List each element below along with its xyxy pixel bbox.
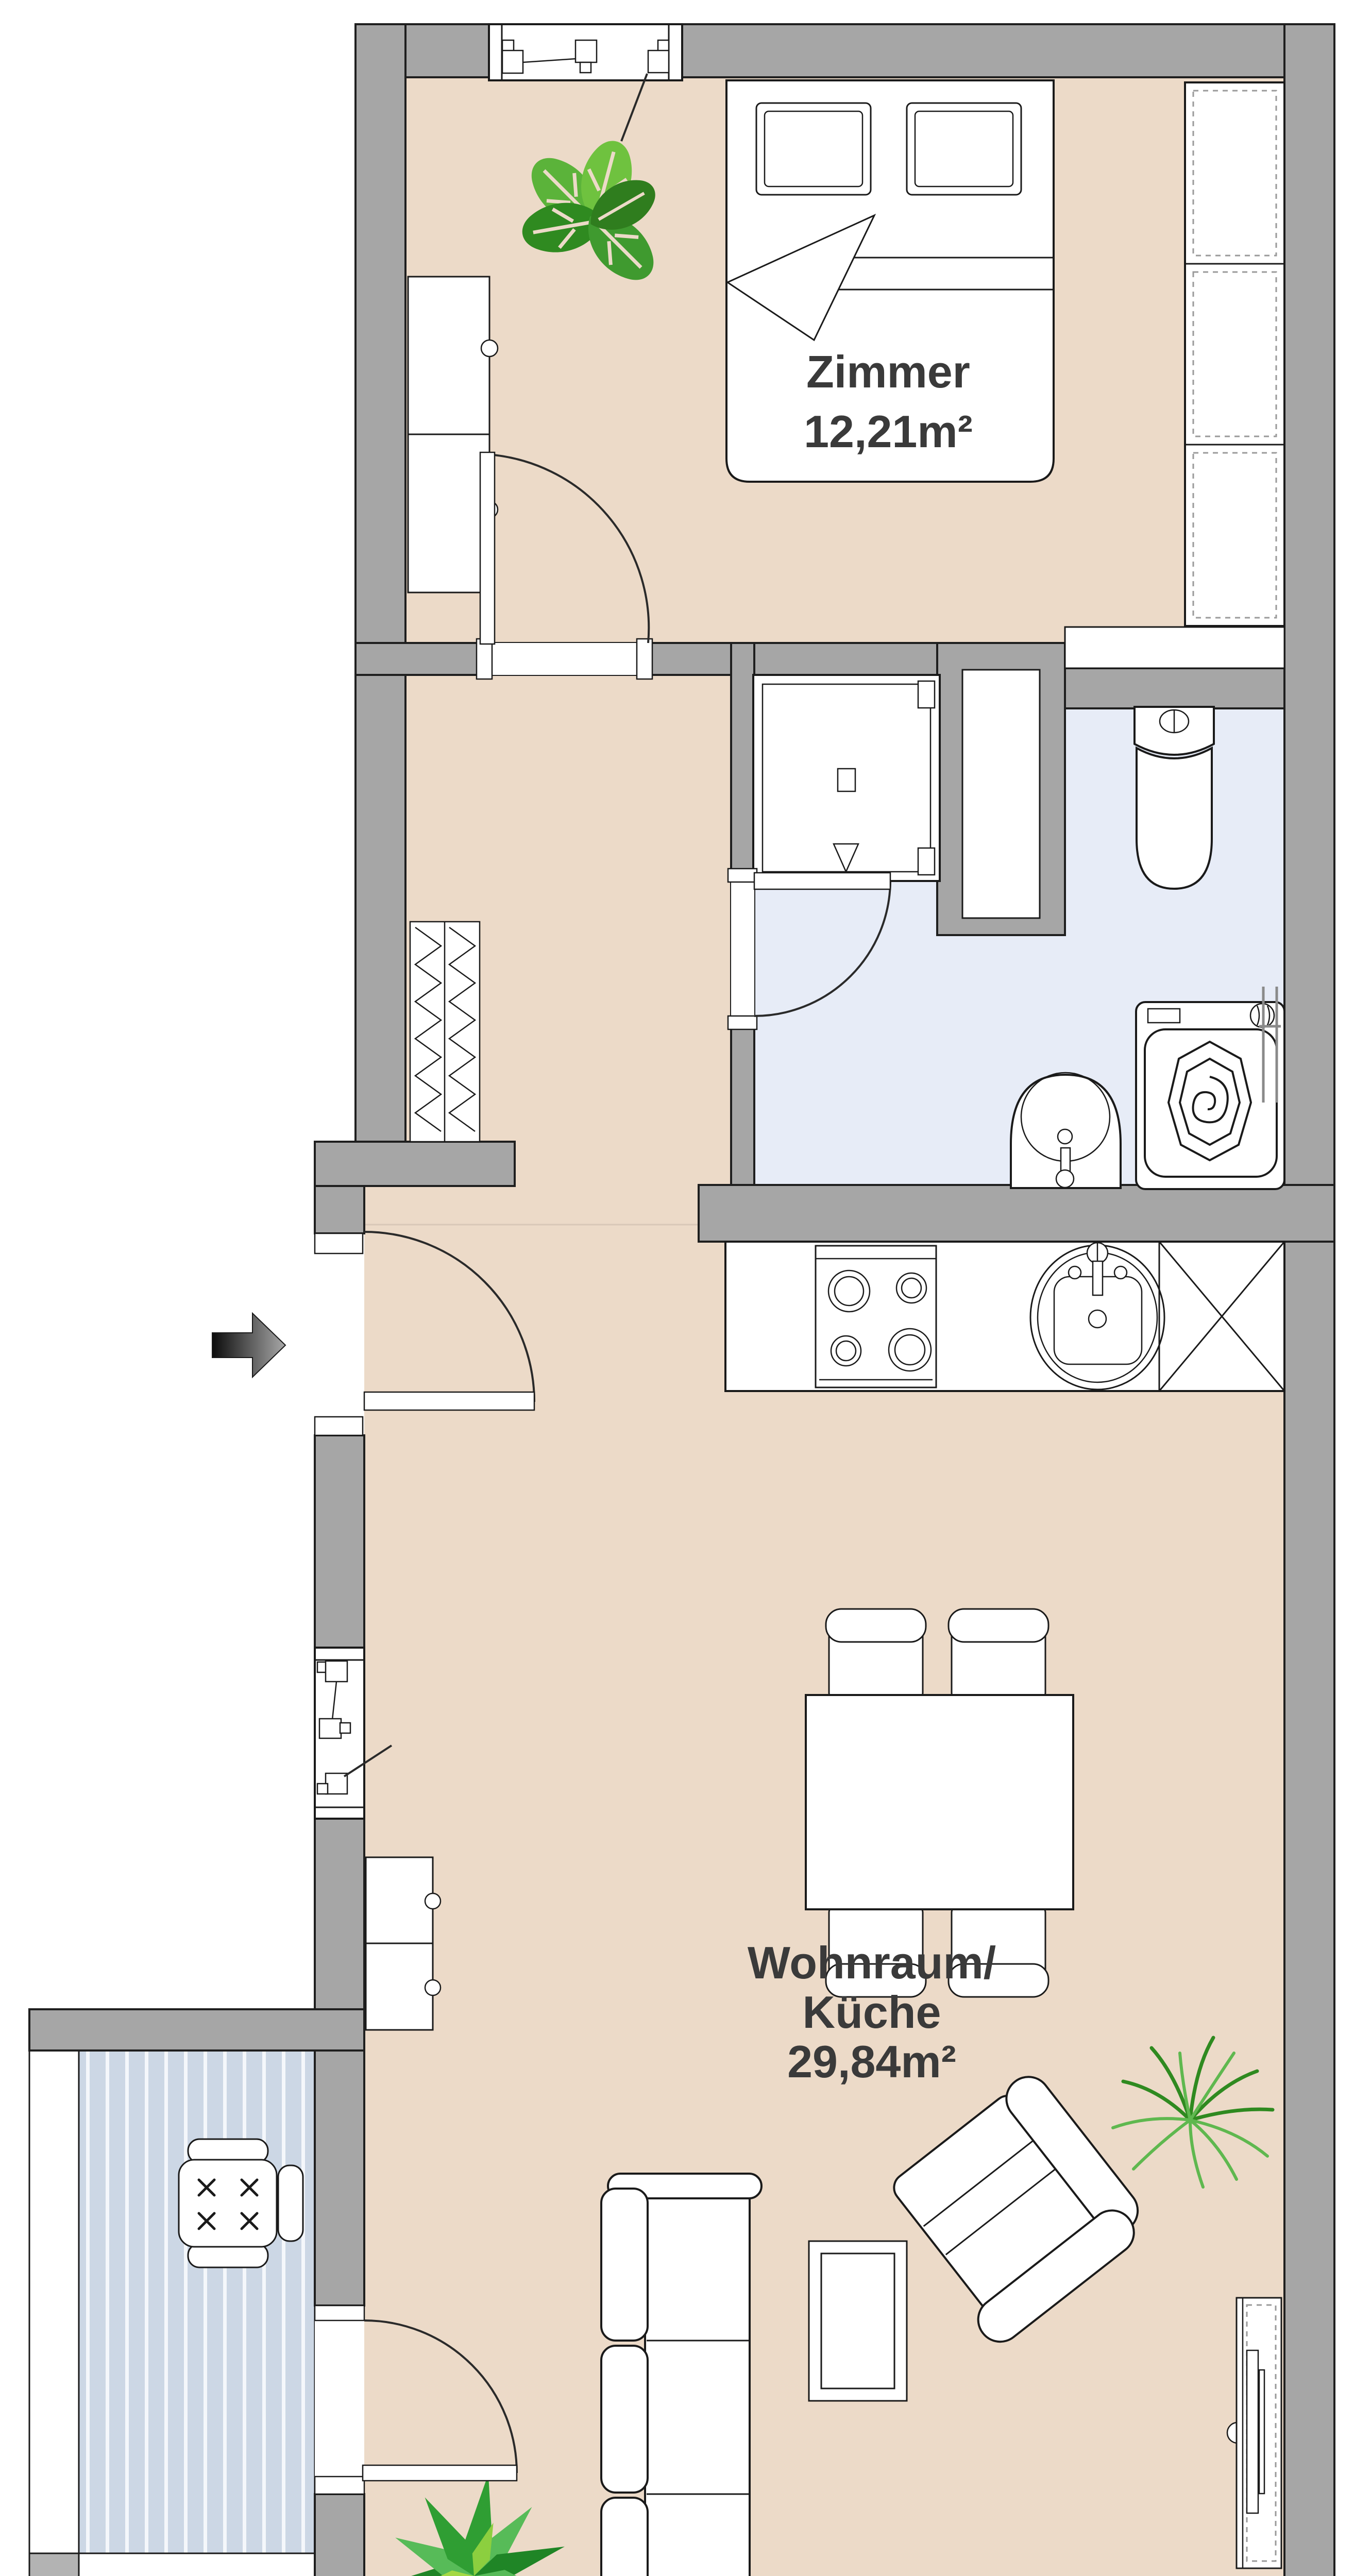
kitchen-counter bbox=[725, 1242, 1284, 1391]
toilet bbox=[1135, 707, 1214, 889]
wall-left-mid bbox=[315, 1435, 364, 1648]
sink-drain-icon bbox=[1089, 1310, 1106, 1328]
tv-mount-icon bbox=[1259, 2370, 1264, 2494]
stove bbox=[816, 1246, 936, 1387]
balcony-parapet-bottom bbox=[79, 2553, 315, 2576]
zimmer-sideboard-band bbox=[1065, 627, 1284, 668]
dining-chair bbox=[949, 1609, 1048, 1699]
wall-entry-jut bbox=[315, 1142, 515, 1186]
living-label-line2: Küche bbox=[803, 1987, 941, 2038]
window-fitting-icon bbox=[502, 50, 523, 73]
sofa-back-cushion bbox=[601, 2346, 648, 2493]
window-fitting-icon bbox=[580, 62, 591, 73]
window-fitting-icon bbox=[658, 40, 669, 52]
zimmer-area: 12,21m² bbox=[804, 406, 973, 457]
basin-drain-icon bbox=[1058, 1129, 1072, 1144]
basin-tap-knob-icon bbox=[1056, 1170, 1074, 1188]
sofa-back-cushion bbox=[601, 2189, 648, 2341]
shower bbox=[753, 675, 940, 881]
wall-left-lower bbox=[315, 2494, 364, 2576]
window-handle-icon bbox=[319, 1719, 341, 1738]
wall-left-below-window bbox=[315, 1819, 364, 2009]
door-leaf bbox=[363, 2465, 517, 2481]
entrance-arrow-icon bbox=[212, 1313, 285, 1377]
balcony-chair-right bbox=[278, 2165, 303, 2241]
coffee-table bbox=[809, 2241, 907, 2401]
door-leaf bbox=[480, 452, 495, 644]
bed-pillow bbox=[756, 103, 871, 195]
dining-chair bbox=[826, 1609, 926, 1699]
zimmer-label: Zimmer bbox=[806, 346, 970, 397]
door-leaf bbox=[364, 1392, 534, 1410]
tv-icon bbox=[1247, 2350, 1258, 2513]
balcony-table bbox=[179, 2160, 277, 2247]
sofa-back-cushion bbox=[601, 2498, 648, 2576]
window-fitting-icon bbox=[502, 40, 514, 52]
washer-display-icon bbox=[1148, 1009, 1180, 1023]
window-handle-icon bbox=[576, 40, 597, 62]
washbasin bbox=[1011, 1073, 1121, 1188]
balcony-parapet-corner-pillar bbox=[29, 2553, 79, 2576]
living-cabinet bbox=[366, 1857, 441, 2030]
balcony bbox=[29, 2050, 315, 2576]
window-fitting-icon bbox=[326, 1661, 347, 1682]
dining-table bbox=[806, 1695, 1073, 1909]
wall-left-at-balcony bbox=[315, 2050, 364, 2306]
shower-hinge-icon bbox=[918, 848, 935, 875]
wall-bath-south bbox=[699, 1185, 1334, 1242]
sofa bbox=[601, 2174, 761, 2576]
wall-left-upper bbox=[356, 24, 405, 1142]
balcony-floor bbox=[79, 2050, 315, 2553]
window-fitting-icon bbox=[317, 1784, 328, 1794]
window-fitting-icon bbox=[326, 1773, 347, 1794]
living-area: 29,84m² bbox=[787, 2036, 956, 2087]
door-leaf bbox=[754, 873, 890, 889]
cabinet-knob-icon bbox=[481, 340, 498, 357]
radiator-hall bbox=[410, 922, 480, 1142]
wall-left-entry-stub bbox=[315, 1186, 364, 1233]
window-fitting-icon bbox=[340, 1723, 350, 1733]
cabinet-knob-icon bbox=[425, 1893, 441, 1909]
cabinet-knob-icon bbox=[425, 1980, 441, 1995]
floor-plan-page: Zimmer 12,21m² bbox=[0, 0, 1371, 2576]
wall-bath-north-right bbox=[1065, 668, 1284, 708]
living-label-line1: Wohnraum/ bbox=[748, 1937, 996, 1988]
window-fitting-icon bbox=[648, 50, 669, 73]
wall-balcony-top bbox=[29, 2009, 364, 2050]
bed-pillow bbox=[907, 103, 1021, 195]
sofa-body bbox=[645, 2185, 750, 2576]
wall-right bbox=[1284, 24, 1334, 2576]
floor-plan-drawing: Zimmer 12,21m² bbox=[0, 0, 1371, 2576]
balcony-parapet-left bbox=[29, 2050, 79, 2553]
shower-hinge-icon bbox=[918, 681, 935, 708]
wardrobe-sliding bbox=[1185, 82, 1284, 626]
duct-shaft-inset bbox=[962, 670, 1040, 918]
